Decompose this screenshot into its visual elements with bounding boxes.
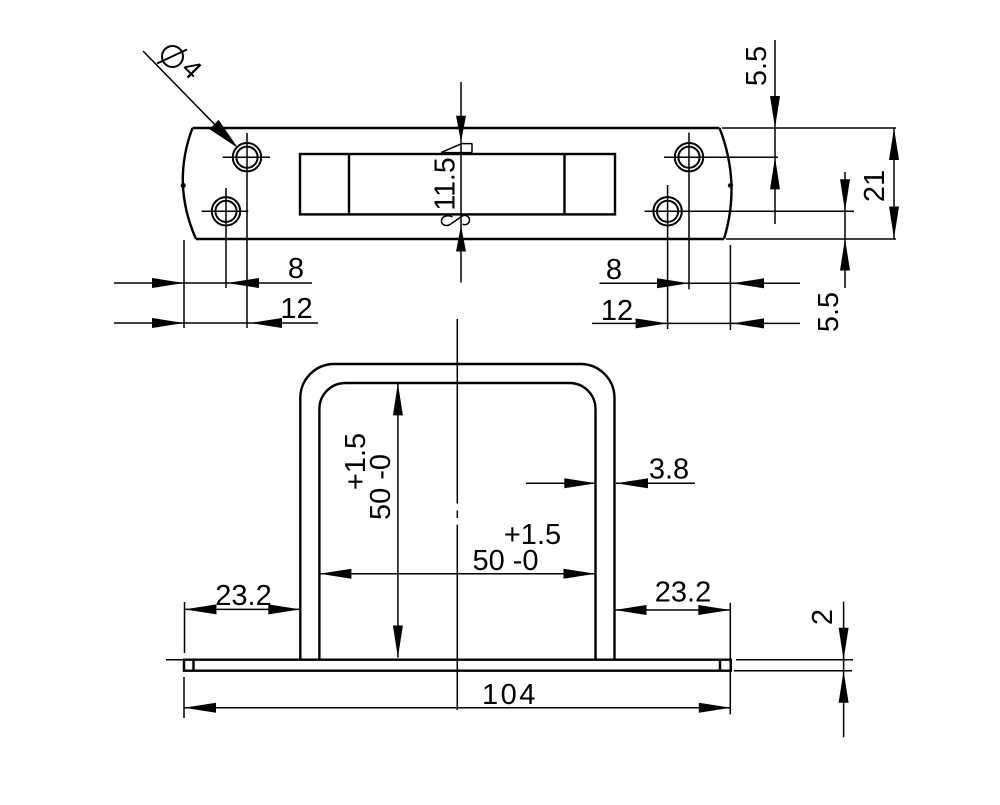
svg-text:104: 104 xyxy=(482,679,538,711)
svg-text:23.2: 23.2 xyxy=(215,580,271,612)
svg-text:50 -0: 50 -0 xyxy=(365,454,397,520)
svg-text:5.5: 5.5 xyxy=(741,46,773,86)
svg-text:8: 8 xyxy=(288,253,304,285)
svg-text:12: 12 xyxy=(601,295,633,327)
svg-text:5.5: 5.5 xyxy=(813,292,845,332)
svg-text:50 -0: 50 -0 xyxy=(472,545,538,577)
svg-text:8: 8 xyxy=(606,254,622,286)
svg-text:11.5: 11.5 xyxy=(430,157,462,210)
svg-text:2: 2 xyxy=(807,609,839,625)
svg-text:23.2: 23.2 xyxy=(655,577,711,609)
svg-text:12: 12 xyxy=(280,293,312,325)
svg-text:3.8: 3.8 xyxy=(649,454,689,486)
svg-text:21: 21 xyxy=(859,170,891,202)
